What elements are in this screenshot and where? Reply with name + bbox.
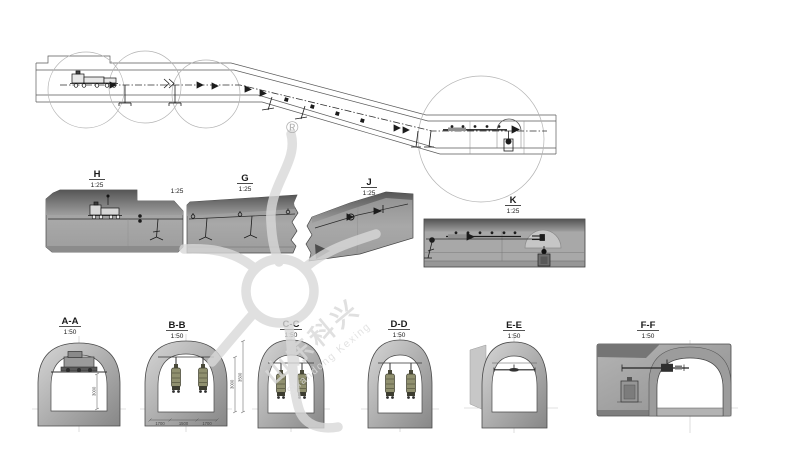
registered-mark: ® [286,118,299,137]
dim-text-bb-w1: 1700 [155,421,165,426]
label-section-ff-scale: 1:50 [642,333,655,340]
dim-text-bb-w2: 1500 [179,421,189,426]
label-section-ff: F-F [641,320,656,331]
tunnel-equipment-drawing: 3000 3000 3500 1700 1500 1700 [0,0,800,450]
dim-text-aa: 3000 [92,386,97,396]
label-section-bb: B-B [169,320,186,331]
label-detail-k: K [510,195,517,206]
label-section-dd-scale: 1:50 [393,332,406,339]
plan-centerline [60,85,547,131]
detail-view-h [46,190,183,252]
detail-view-g [187,195,298,253]
label-detail-g: G [241,173,248,184]
label-detail-h-scale: 1:25 [91,182,104,189]
dim-text-bb-w3: 1700 [202,421,212,426]
detail-view-k [424,219,585,267]
label-detail-h: H [94,169,101,180]
label-section-bb-scale: 1:50 [171,333,184,340]
label-section-aa-scale: 1:50 [64,329,77,336]
section-f-f [597,340,738,433]
label-inline-scale: 1:25 [171,188,184,195]
label-detail-k-scale: 1:25 [507,208,520,215]
label-section-dd: D-D [391,319,408,330]
label-detail-j-scale: 1:25 [363,190,376,197]
dim-text-bb-inner: 3000 [230,379,235,389]
section-d-d [361,334,439,432]
section-e-e [464,336,558,433]
drawing-canvas: 3000 3000 3500 1700 1500 1700 [0,0,800,450]
label-detail-g-scale: 1:25 [239,186,252,193]
label-section-aa: A-A [62,316,79,327]
dim-text-bb-outer: 3500 [238,372,243,382]
section-a-a: 3000 [32,336,126,432]
detail-circle-h [48,52,124,128]
label-section-ee-scale: 1:50 [508,333,521,340]
label-section-ee: E-E [506,320,522,331]
detail-circle-k [418,76,544,202]
label-detail-j: J [366,177,371,188]
cabinet-icon-ff [617,377,642,402]
